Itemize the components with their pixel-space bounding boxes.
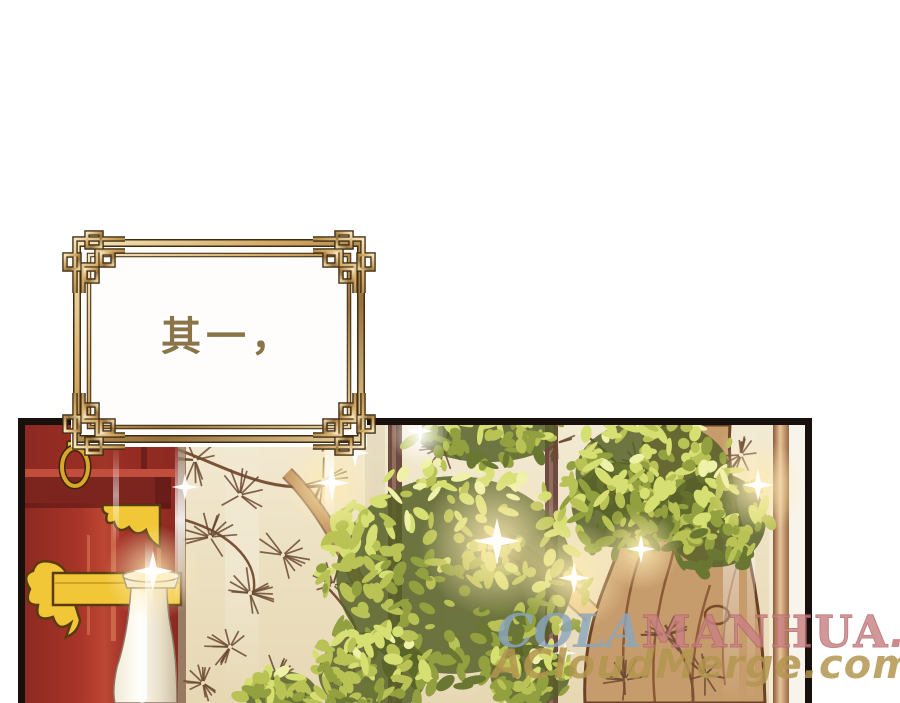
cabinet-beam: [25, 469, 175, 509]
light-streak: [113, 445, 119, 545]
light-streak: [175, 435, 185, 605]
watermark-line2: ACloudMerge.com: [492, 642, 900, 688]
dialog-text: 其一，: [161, 315, 296, 359]
dialog-box: 其一，: [61, 229, 377, 457]
